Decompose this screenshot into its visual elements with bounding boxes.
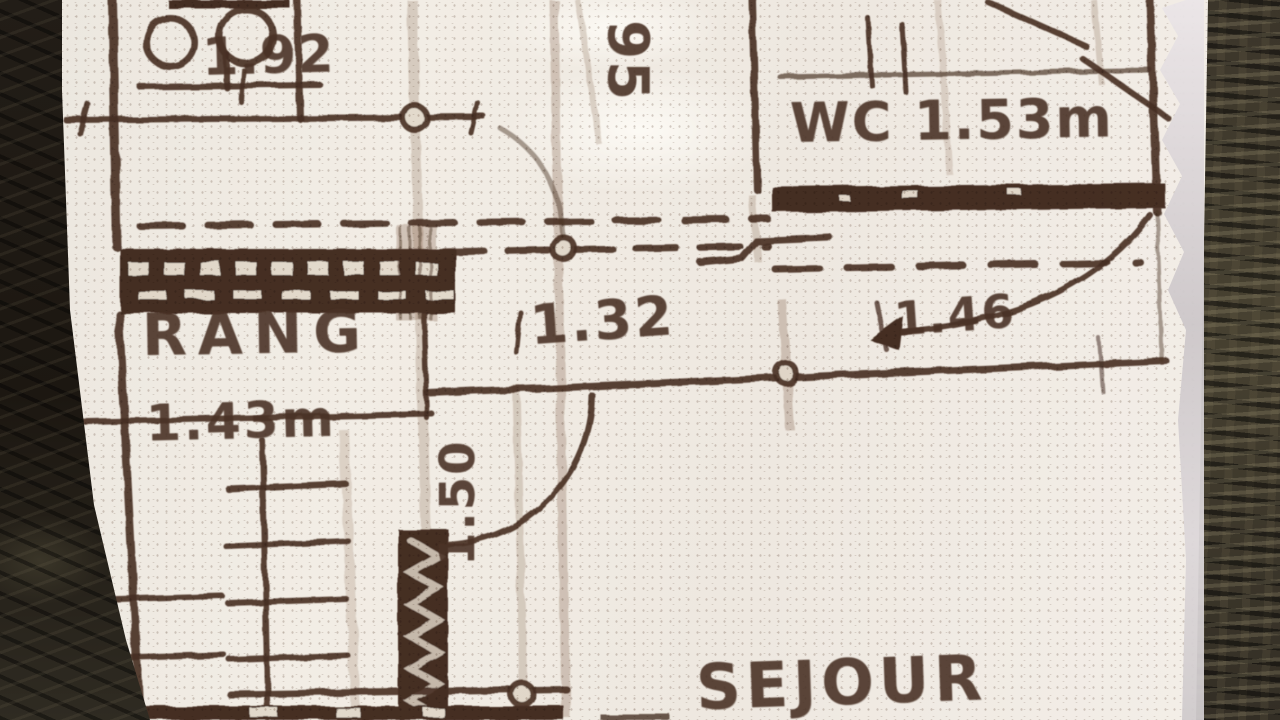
dimension-label-1-92: 1.92 xyxy=(201,28,335,83)
area-label-rang-1-43m: 1.43m xyxy=(145,394,337,449)
dimension-label-95: 95 xyxy=(599,20,655,102)
dimension-label-1-32: 1.32 xyxy=(528,289,677,353)
room-label-rang: RANG xyxy=(142,302,373,364)
top-right-thick-wall xyxy=(772,183,1165,212)
room-label-sejour: SEJOUR xyxy=(695,647,988,719)
dimension-label-1-46: 1.46 xyxy=(893,288,1017,342)
interior-vertical-wall xyxy=(752,0,757,190)
floor-plan-paper: 1.92 95 WC 1.53m RANG 1.43m 1.32 1.46 1.… xyxy=(0,0,1280,720)
dimension-label-1-50: 1.50 xyxy=(434,440,482,566)
photo-of-floor-plan: 1.92 95 WC 1.53m RANG 1.43m 1.32 1.46 1.… xyxy=(0,0,1280,720)
room-label-wc: WC 1.53m xyxy=(790,91,1114,151)
right-wall xyxy=(1150,0,1157,212)
